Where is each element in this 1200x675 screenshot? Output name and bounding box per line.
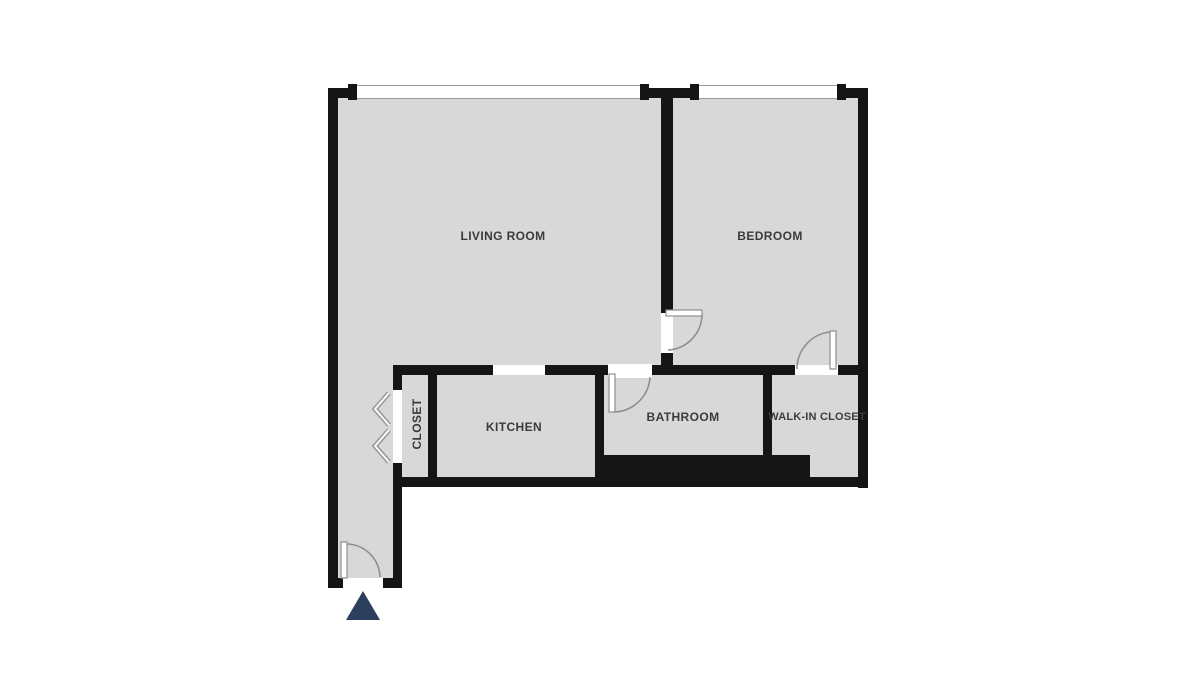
bedroom-window bbox=[697, 85, 839, 99]
kitchen-label: KITCHEN bbox=[486, 420, 542, 434]
closet-label: CLOSET bbox=[410, 398, 424, 449]
wall-bottom bbox=[393, 477, 868, 487]
window-end-cap bbox=[348, 84, 357, 100]
floor-plan: LIVING ROOM BEDROOM KITCHEN BATHROOM WAL… bbox=[0, 0, 1200, 675]
entrance-arrow-icon bbox=[346, 591, 380, 620]
living-room-window bbox=[356, 85, 642, 99]
living-room-label: LIVING ROOM bbox=[460, 229, 545, 243]
kitchen-opening bbox=[493, 365, 545, 375]
window-end-cap bbox=[640, 84, 649, 100]
wall-closet-right bbox=[428, 365, 437, 487]
closet-bifold-opening bbox=[393, 390, 402, 463]
window-end-cap bbox=[837, 84, 846, 100]
bedroom-label: BEDROOM bbox=[737, 229, 802, 243]
wall-kitchen-right bbox=[595, 365, 604, 460]
bathroom-door-opening bbox=[608, 364, 652, 378]
bedroom-door-opening bbox=[661, 313, 673, 353]
walk-in-closet-label: WALK-IN CLOSET bbox=[768, 411, 866, 423]
walk-in-closet-door-opening bbox=[795, 365, 838, 375]
wall-left bbox=[328, 88, 338, 588]
wall-right bbox=[858, 88, 868, 488]
hallway-floor-area bbox=[333, 370, 395, 583]
entry-door-opening bbox=[343, 578, 383, 588]
wall-hallway-right bbox=[393, 487, 402, 588]
window-end-cap bbox=[690, 84, 699, 100]
wall-livingroom-bedroom-divider bbox=[661, 98, 673, 313]
bathroom-label: BATHROOM bbox=[647, 410, 720, 424]
